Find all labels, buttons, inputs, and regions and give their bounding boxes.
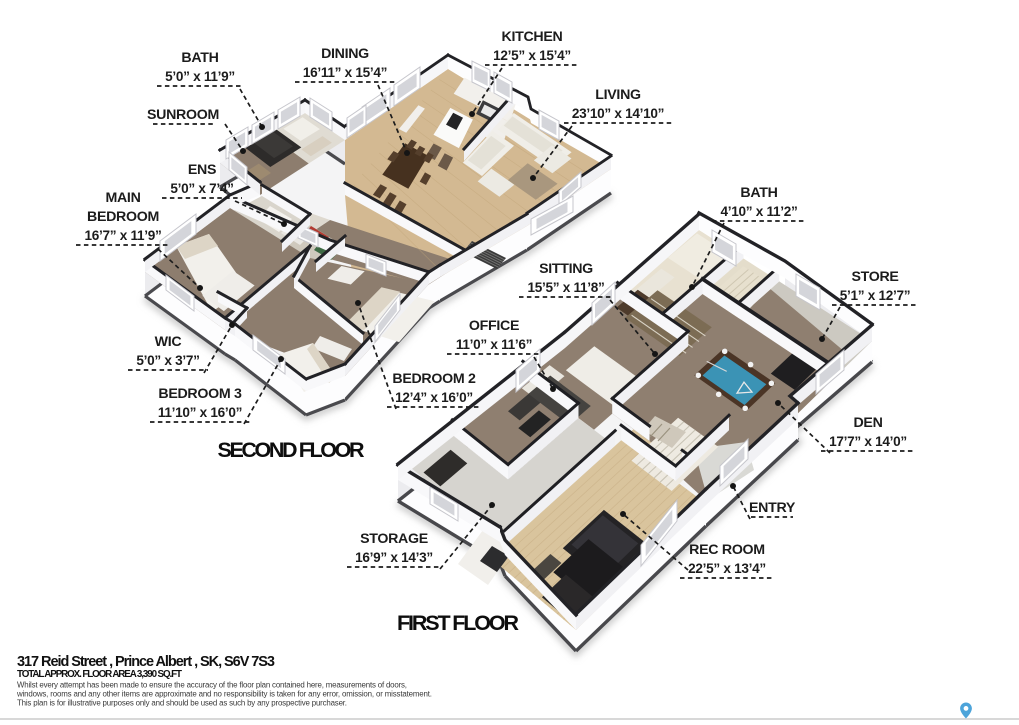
svg-text:MAIN: MAIN (105, 190, 140, 206)
svg-text:LIVING: LIVING (595, 87, 641, 103)
svg-text:11’10” x 16’0”: 11’10” x 16’0” (158, 405, 242, 420)
svg-text:16’9” x 14’3”: 16’9” x 14’3” (355, 550, 433, 565)
svg-text:Whilst every attempt has been: Whilst every attempt has been made to en… (17, 681, 407, 690)
svg-text:SECOND FLOOR: SECOND FLOOR (218, 438, 365, 462)
svg-text:5’1” x 12’7”: 5’1” x 12’7” (840, 288, 910, 303)
svg-text:12’4” x 16’0”: 12’4” x 16’0” (395, 390, 473, 405)
svg-text:BEDROOM 2: BEDROOM 2 (392, 371, 476, 387)
svg-text:5’0” x 11’9”: 5’0” x 11’9” (165, 69, 235, 84)
svg-text:DINING: DINING (321, 46, 369, 62)
svg-text:STORE: STORE (851, 269, 898, 285)
svg-text:11’0” x 11’6”: 11’0” x 11’6” (456, 337, 532, 352)
svg-text:WIC: WIC (155, 334, 182, 350)
svg-text:KITCHEN: KITCHEN (502, 29, 563, 45)
svg-text:TOTAL APPROX. FLOOR AREA 3,390: TOTAL APPROX. FLOOR AREA 3,390 SQ.FT (17, 669, 182, 680)
svg-text:BATH: BATH (181, 50, 218, 66)
svg-text:BATH: BATH (740, 185, 777, 201)
svg-text:317 Reid Street , Prince Alber: 317 Reid Street , Prince Albert , SK, S6… (17, 654, 275, 670)
svg-text:windows, rooms and any other i: windows, rooms and any other items are a… (16, 690, 432, 699)
svg-text:5’0” x 7’4”: 5’0” x 7’4” (170, 181, 233, 196)
svg-text:SUNROOM: SUNROOM (147, 107, 219, 123)
svg-text:REC ROOM: REC ROOM (689, 542, 765, 558)
svg-text:FIRST FLOOR: FIRST FLOOR (397, 611, 519, 635)
svg-text:15’5” x 11’8”: 15’5” x 11’8” (528, 280, 605, 295)
svg-text:16’11” x 15’4”: 16’11” x 15’4” (303, 65, 387, 80)
svg-text:ENTRY: ENTRY (749, 500, 796, 516)
svg-text:OFFICE: OFFICE (469, 318, 519, 334)
svg-text:22’5” x 13’4”: 22’5” x 13’4” (688, 561, 766, 576)
svg-text:16’7” x 11’9”: 16’7” x 11’9” (85, 228, 162, 243)
svg-text:STORAGE: STORAGE (360, 531, 428, 547)
svg-text:BEDROOM: BEDROOM (87, 209, 159, 225)
svg-text:DEN: DEN (853, 415, 882, 431)
svg-text:23’10” x 14’10”: 23’10” x 14’10” (572, 106, 664, 121)
svg-text:4’10” x 11’2”: 4’10” x 11’2” (721, 204, 798, 219)
svg-text:SITTING: SITTING (539, 261, 593, 277)
svg-text:5’0” x 3’7”: 5’0” x 3’7” (136, 353, 199, 368)
svg-text:ENS: ENS (188, 162, 216, 178)
svg-text:12’5” x 15’4”: 12’5” x 15’4” (493, 48, 571, 63)
svg-text:17’7” x 14’0”: 17’7” x 14’0” (829, 434, 907, 449)
svg-text:BEDROOM 3: BEDROOM 3 (158, 386, 242, 402)
svg-text:This plan is for illustrative: This plan is for illustrative purposes o… (17, 699, 347, 708)
